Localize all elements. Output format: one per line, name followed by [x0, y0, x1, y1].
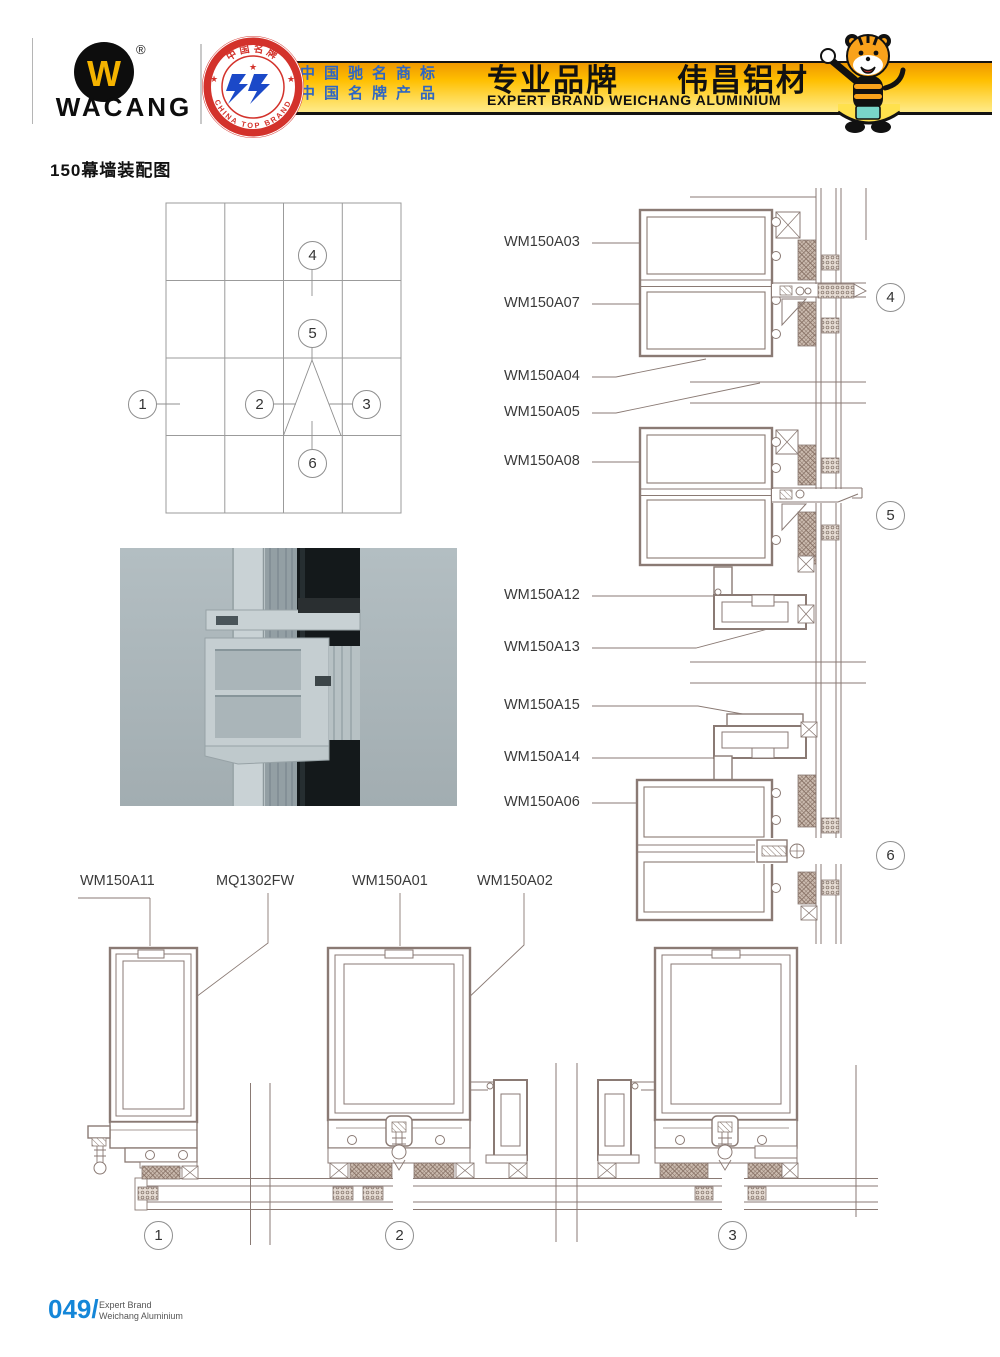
part-label: WM150A15 [504, 697, 580, 713]
section-3-drawing [598, 948, 798, 1178]
callout-4: 4 [298, 241, 327, 270]
section-2-drawing [328, 948, 527, 1178]
page-number: 049/ [48, 1294, 99, 1325]
part-label: WM150A12 [504, 587, 580, 603]
part-label: WM150A07 [504, 295, 580, 311]
badge-star-right: ★ [287, 74, 295, 84]
part-label: WM150A04 [504, 368, 580, 384]
page-edge-line [32, 38, 33, 124]
banner-slogans: 中国驰名商标 中国名牌产品 [300, 64, 444, 104]
part-label: WM150A05 [504, 404, 580, 420]
slogan-line2: 中国名牌产品 [300, 84, 444, 104]
brand-wordmark: WACANG [44, 92, 204, 123]
section-callout-2: 2 [385, 1221, 414, 1250]
badge-star-left: ★ [210, 74, 218, 84]
callout-leader-lines [156, 269, 353, 450]
section-callout-4: 4 [876, 283, 905, 312]
section-4-drawing [640, 210, 866, 356]
callout-3: 3 [352, 390, 381, 419]
section-callout-1: 1 [144, 1221, 173, 1250]
section-callout-3: 3 [718, 1221, 747, 1250]
callout-5: 5 [298, 319, 327, 348]
banner-brand-en: EXPERT BRAND WEICHANG ALUMINIUM [487, 92, 781, 108]
sill-lines [135, 1178, 878, 1210]
sill-mesh-blocks [138, 1187, 766, 1200]
section-drawings-bottom [60, 860, 880, 1260]
part-label: WM150A14 [504, 749, 580, 765]
page-title: 150幕墙装配图 [50, 156, 171, 181]
section-callout-6: 6 [876, 841, 905, 870]
cutaway-profile [205, 598, 360, 764]
section-5-drawing [640, 428, 862, 629]
callout-2: 2 [245, 390, 274, 419]
part-label: WM150A02 [477, 873, 553, 889]
registered-mark: ® [136, 42, 146, 57]
footer-brand: Expert Brand Weichang Aluminium [99, 1300, 183, 1322]
tiger-mascot-icon [815, 26, 915, 138]
logo-w-glyph: W [87, 56, 121, 92]
grid-lines [166, 203, 401, 513]
part-label: MQ1302FW [216, 873, 294, 889]
badge-star-center: ★ [249, 62, 257, 72]
profile-photo [120, 548, 457, 806]
part-label: WM150A03 [504, 234, 580, 250]
part-label: WM150A01 [352, 873, 428, 889]
china-top-brand-badge-icon: 中国名牌 CHINA TOP BRAND ★ ★ ★ [198, 32, 308, 142]
elevation-grid-diagram [120, 190, 420, 530]
part-label: WM150A11 [80, 873, 155, 889]
slogan-line1: 中国驰名商标 [300, 64, 444, 84]
part-label: WM150A06 [504, 794, 580, 810]
part-label: WM150A08 [504, 453, 580, 469]
callout-6: 6 [298, 449, 327, 478]
section-callout-5: 5 [876, 501, 905, 530]
footer-brand-line2: Weichang Aluminium [99, 1311, 183, 1322]
callout-1: 1 [128, 390, 157, 419]
footer-brand-line1: Expert Brand [99, 1300, 183, 1311]
section-1-drawing [88, 948, 198, 1179]
part-label: WM150A13 [504, 639, 580, 655]
catalog-page: W ® WACANG 中国驰名商标 中国名牌产品 专业品牌伟昌铝材 EXPERT… [0, 0, 1000, 1357]
